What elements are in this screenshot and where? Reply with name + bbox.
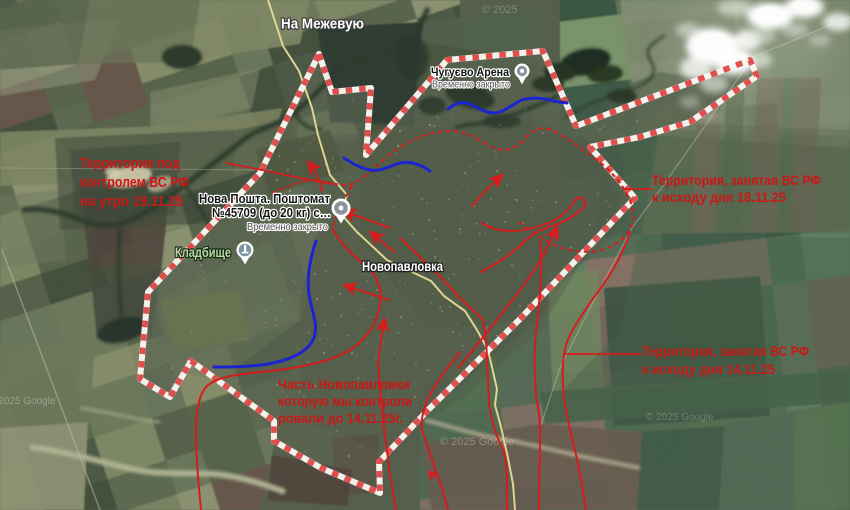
svg-text:© 2025 Google: © 2025 Google <box>0 396 56 407</box>
svg-text:ровали до 14.11.25г.: ровали до 14.11.25г. <box>278 410 403 426</box>
svg-text:№45709 (до 20 кг) с…: №45709 (до 20 кг) с… <box>212 205 331 220</box>
svg-text:© 2025 Google: © 2025 Google <box>646 412 714 423</box>
svg-text:© 2025: © 2025 <box>482 4 518 16</box>
svg-text:на утро 19.11.25: на утро 19.11.25 <box>80 193 183 210</box>
svg-text:Временно закрыто: Временно закрыто <box>247 222 328 233</box>
svg-text:Территория, занятая ВС РФ: Территория, занятая ВС РФ <box>652 172 821 188</box>
svg-text:Новопавловка: Новопавловка <box>362 258 443 274</box>
svg-text:Часть Новопавловки: Часть Новопавловки <box>278 376 410 392</box>
svg-text:Территория, занятая ВС РФ: Территория, занятая ВС РФ <box>642 343 809 359</box>
svg-text:которую мы контроли: которую мы контроли <box>278 393 412 409</box>
svg-text:к исходу дня 18.11.25: к исходу дня 18.11.25 <box>652 189 786 205</box>
svg-text:к исходу дня 14.11.25: к исходу дня 14.11.25 <box>642 361 775 377</box>
svg-text:Кладбище: Кладбище <box>175 245 231 260</box>
svg-text:Нова Пошта. Поштомат: Нова Пошта. Поштомат <box>199 191 330 206</box>
svg-text:контролем ВС РФ: контролем ВС РФ <box>80 174 189 191</box>
svg-text:Временно закрыто: Временно закрыто <box>432 80 510 91</box>
svg-text:Чугуєво Арена: Чугуєво Арена <box>431 65 509 79</box>
svg-text:На Межевую: На Межевую <box>281 16 364 33</box>
svg-text:Территория под: Территория под <box>80 155 180 172</box>
